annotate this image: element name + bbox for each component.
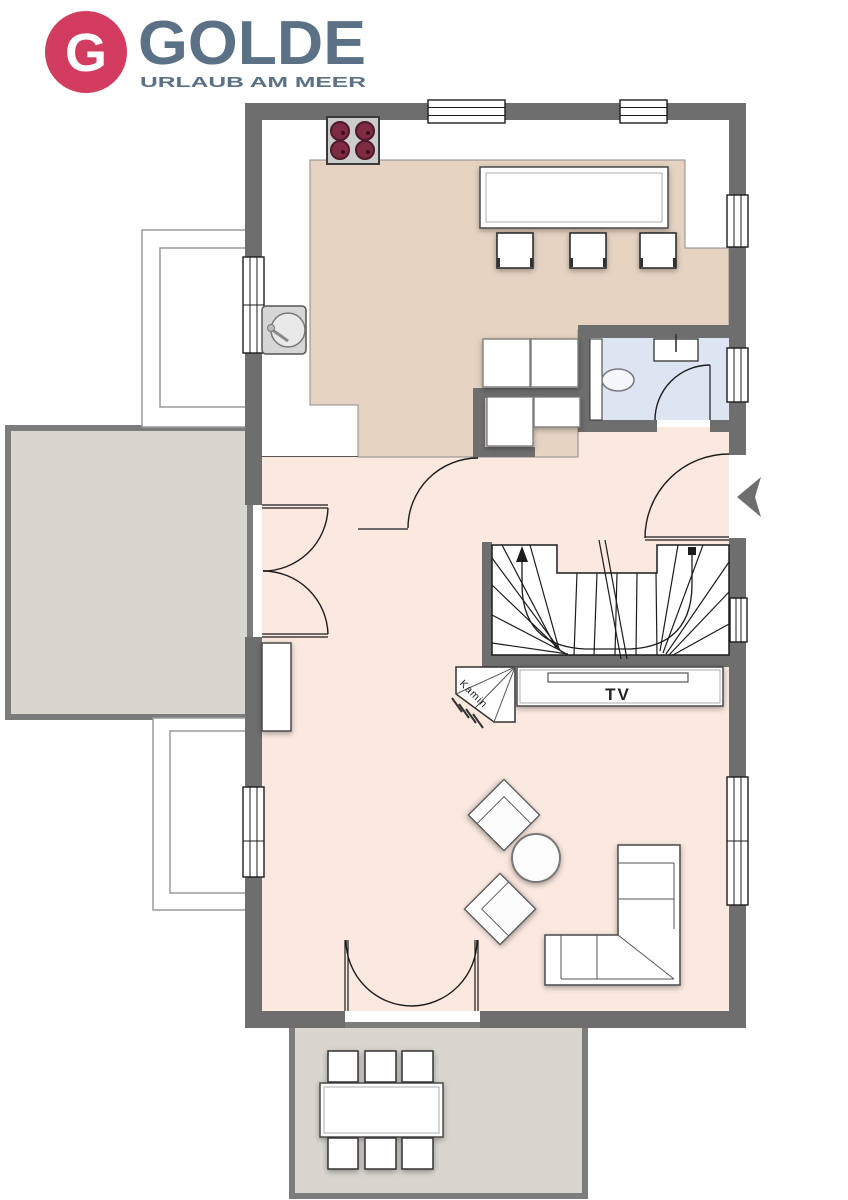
window-left-1 xyxy=(243,257,264,353)
patio-chair xyxy=(328,1051,358,1082)
window-right-bath xyxy=(727,348,748,402)
logo-monogram: G xyxy=(65,23,107,83)
sideboard xyxy=(262,643,291,731)
tv-screen xyxy=(548,673,688,682)
wall-right-2 xyxy=(729,247,746,348)
wall-closet-stub xyxy=(473,388,485,447)
stove xyxy=(327,117,379,164)
patio-chair xyxy=(365,1051,396,1082)
wall-right-6 xyxy=(729,905,746,1028)
wall-stairs-bottom xyxy=(482,655,729,667)
tv-label: TV xyxy=(605,685,631,704)
stair-start-marker xyxy=(688,547,696,555)
wall-bath-bottom-stub xyxy=(710,420,729,432)
toilet xyxy=(602,369,634,391)
counter-foot xyxy=(262,405,358,457)
wall-right-1 xyxy=(729,103,746,195)
wall-bath-bottom xyxy=(578,420,657,432)
shower-strip xyxy=(590,339,602,420)
patio-chair xyxy=(402,1051,433,1082)
bar-stool xyxy=(640,233,676,268)
patio-dining-set xyxy=(320,1051,443,1169)
wall-bottom-2 xyxy=(480,1011,745,1028)
sink xyxy=(262,306,306,354)
window-right-living xyxy=(727,777,748,905)
tv-board: TV xyxy=(517,667,723,706)
wall-bath-top xyxy=(578,325,729,338)
wall-left-3 xyxy=(245,637,262,787)
window-right-1 xyxy=(727,195,748,247)
brand-name: GOLDE xyxy=(138,9,366,78)
terrace-left xyxy=(8,428,250,717)
logo: G GOLDE URLAUB AM MEER xyxy=(45,9,366,93)
floorplan-drawing: G GOLDE URLAUB AM MEER xyxy=(0,0,848,1200)
wall-left-4 xyxy=(245,877,262,1028)
wall-stairs-left xyxy=(482,542,492,656)
wall-bottom-1 xyxy=(245,1011,345,1028)
wall-left-1 xyxy=(245,103,262,257)
bar-stools xyxy=(497,233,676,268)
brand-tagline: URLAUB AM MEER xyxy=(140,74,366,91)
entrance-arrow-icon xyxy=(737,477,761,517)
wall-right-3 xyxy=(729,402,746,455)
wall-closet-stub-2 xyxy=(473,447,535,457)
window-top-2 xyxy=(620,100,667,123)
bar-stool xyxy=(497,233,533,268)
bar-stool xyxy=(570,233,606,268)
window-left-2 xyxy=(243,787,264,877)
floorplan-page: G GOLDE URLAUB AM MEER xyxy=(0,0,848,1200)
patio-chair xyxy=(365,1138,396,1169)
window-right-stairs xyxy=(730,598,747,642)
wall-right-4 xyxy=(729,538,746,598)
bar-table xyxy=(480,167,668,228)
patio-table xyxy=(320,1083,443,1137)
patio-chair xyxy=(328,1138,358,1169)
wall-right-5 xyxy=(729,642,746,777)
patio-chair xyxy=(402,1138,433,1169)
window-top-1 xyxy=(428,100,505,123)
coffee-table xyxy=(512,834,560,882)
wall-left-2 xyxy=(245,353,262,505)
